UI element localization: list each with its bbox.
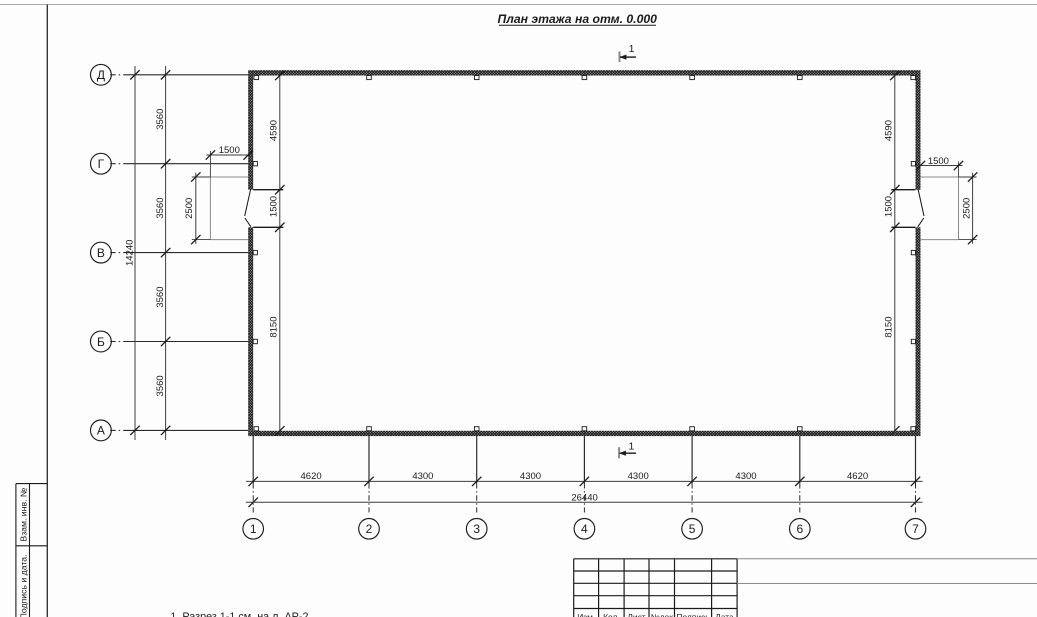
svg-text:4300: 4300 — [735, 471, 756, 482]
svg-text:4590: 4590 — [269, 120, 280, 141]
svg-text:Б: Б — [97, 335, 105, 349]
svg-text:Д: Д — [97, 68, 105, 82]
svg-text:1: 1 — [629, 43, 635, 55]
svg-text:1500: 1500 — [884, 196, 895, 217]
svg-text:1500: 1500 — [219, 145, 240, 156]
svg-text:1: 1 — [250, 522, 257, 536]
svg-text:7: 7 — [912, 522, 919, 536]
svg-text:Кол.: Кол. — [603, 612, 620, 617]
svg-text:4300: 4300 — [628, 471, 649, 482]
svg-text:1: 1 — [628, 441, 634, 453]
svg-text:2500: 2500 — [184, 198, 195, 219]
svg-text:№док: №док — [651, 612, 674, 617]
svg-text:План этажа на отм. 0.000: План этажа на отм. 0.000 — [497, 12, 657, 26]
svg-text:Взам. инв. №: Взам. инв. № — [19, 488, 29, 542]
svg-text:2500: 2500 — [961, 198, 972, 219]
svg-text:8150: 8150 — [884, 317, 895, 338]
svg-text:3560: 3560 — [155, 109, 166, 130]
svg-text:Лист: Лист — [627, 612, 645, 617]
svg-text:4620: 4620 — [301, 471, 322, 482]
svg-text:3560: 3560 — [155, 198, 166, 219]
svg-text:3560: 3560 — [155, 375, 166, 396]
svg-text:2: 2 — [366, 522, 373, 536]
svg-text:3: 3 — [473, 522, 480, 536]
svg-text:Подпись: Подпись — [676, 612, 710, 617]
svg-text:3560: 3560 — [155, 287, 166, 308]
svg-text:Дата: Дата — [715, 612, 734, 617]
svg-text:4: 4 — [581, 522, 588, 536]
svg-text:5: 5 — [689, 522, 696, 536]
svg-text:4590: 4590 — [884, 120, 895, 141]
svg-text:1. Разрез 1-1 см. на л. АР-2: 1. Разрез 1-1 см. на л. АР-2 — [170, 611, 308, 617]
svg-text:Подпись и дата.: Подпись и дата. — [19, 555, 29, 617]
svg-text:4300: 4300 — [520, 471, 541, 482]
svg-text:Изм.: Изм. — [577, 612, 595, 617]
svg-text:6: 6 — [796, 522, 803, 536]
svg-text:4300: 4300 — [412, 471, 433, 482]
svg-text:1500: 1500 — [928, 156, 949, 167]
svg-text:14240: 14240 — [125, 240, 136, 266]
svg-text:4620: 4620 — [847, 471, 868, 482]
svg-text:В: В — [97, 246, 105, 260]
svg-text:8150: 8150 — [269, 317, 280, 338]
svg-text:26440: 26440 — [571, 493, 597, 504]
svg-text:Г: Г — [98, 157, 105, 171]
svg-text:1500: 1500 — [269, 196, 280, 217]
svg-text:А: А — [97, 424, 105, 438]
